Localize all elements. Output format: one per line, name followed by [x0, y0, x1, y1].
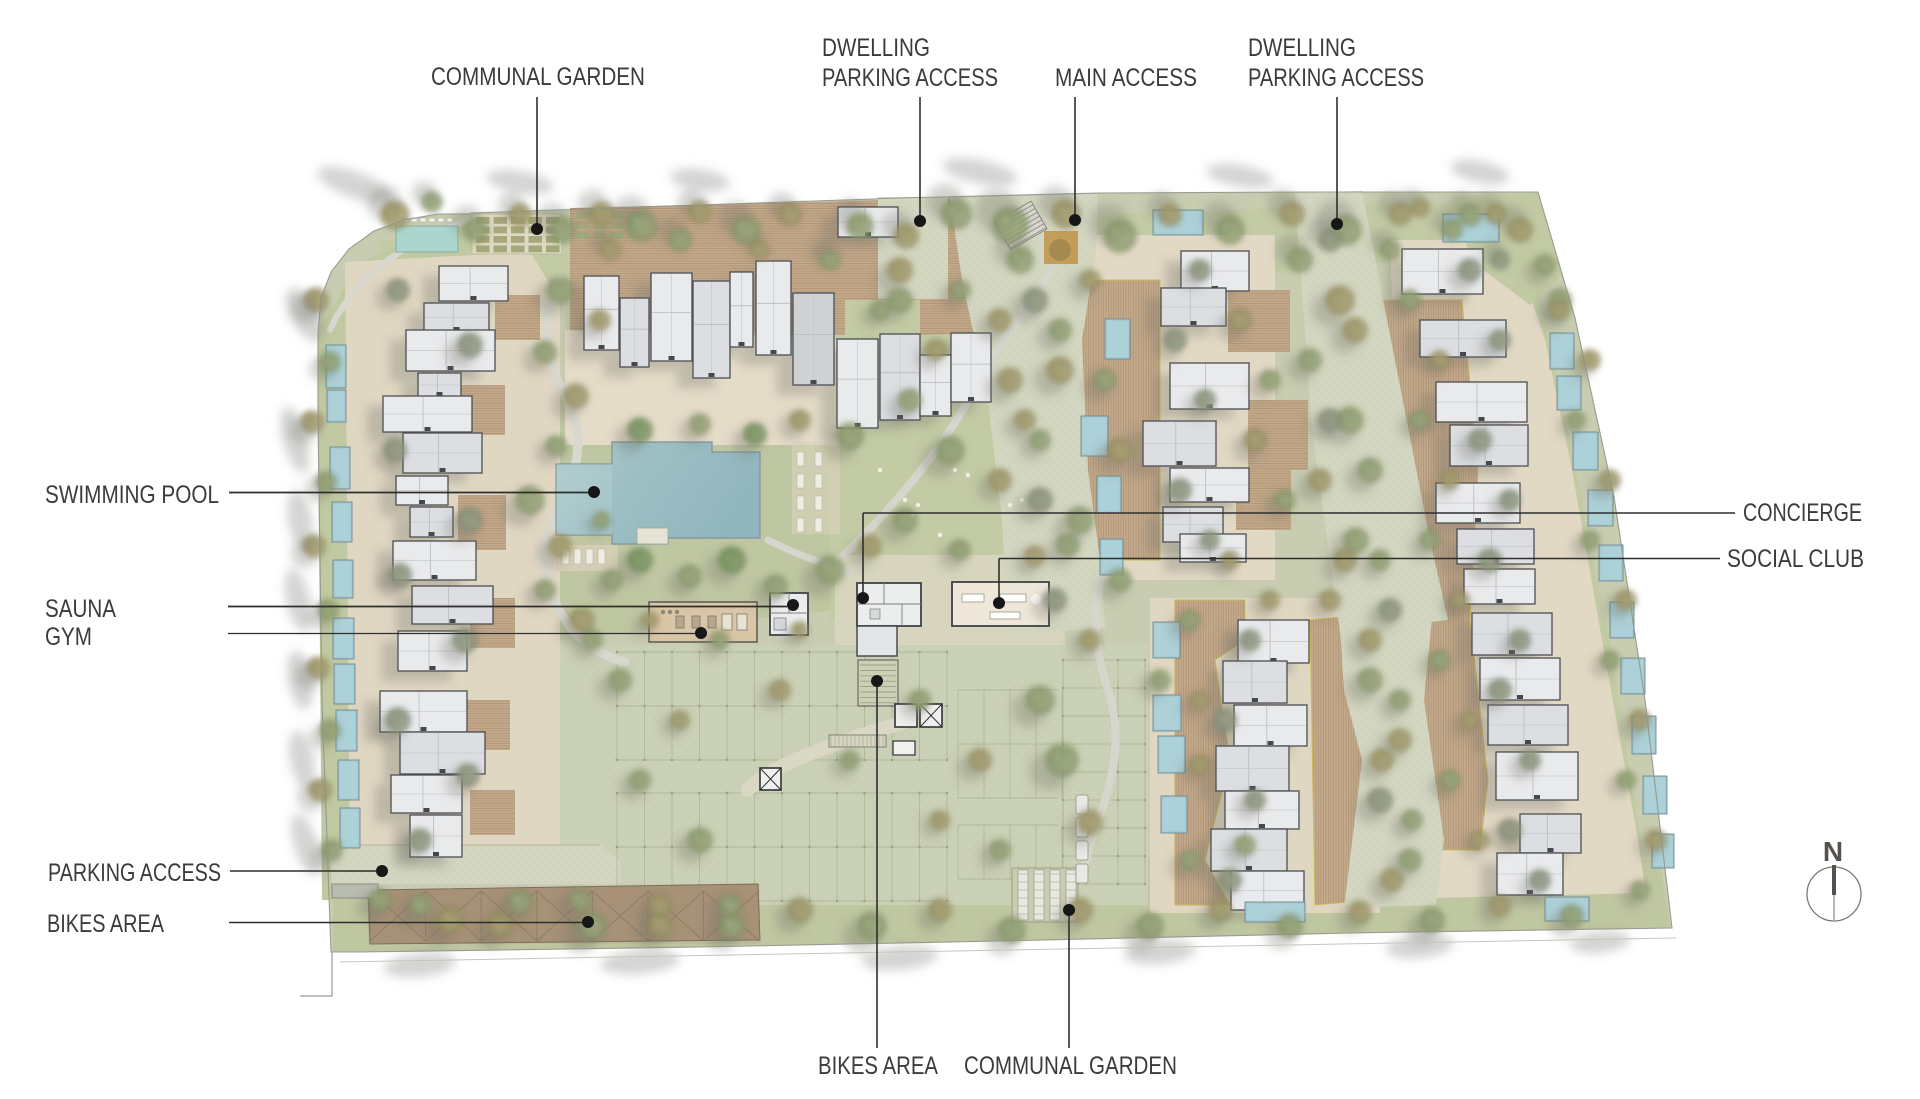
svg-text:SAUNA: SAUNA: [45, 595, 116, 623]
svg-text:DWELLING: DWELLING: [822, 34, 930, 62]
svg-text:SOCIAL CLUB: SOCIAL CLUB: [1727, 545, 1864, 573]
svg-text:MAIN ACCESS: MAIN ACCESS: [1055, 64, 1197, 92]
svg-text:SWIMMING POOL: SWIMMING POOL: [45, 481, 219, 509]
svg-text:BIKES AREA: BIKES AREA: [47, 910, 164, 938]
svg-text:COMMUNAL GARDEN: COMMUNAL GARDEN: [431, 63, 645, 91]
svg-text:PARKING ACCESS: PARKING ACCESS: [48, 859, 221, 887]
svg-text:PARKING ACCESS: PARKING ACCESS: [822, 64, 998, 92]
svg-text:COMMUNAL GARDEN: COMMUNAL GARDEN: [964, 1052, 1177, 1080]
svg-text:DWELLING: DWELLING: [1248, 34, 1356, 62]
svg-text:CONCIERGE: CONCIERGE: [1743, 499, 1862, 527]
svg-text:GYM: GYM: [45, 623, 92, 651]
svg-text:PARKING ACCESS: PARKING ACCESS: [1248, 64, 1424, 92]
svg-text:N: N: [1823, 836, 1843, 867]
svg-text:BIKES AREA: BIKES AREA: [818, 1052, 938, 1080]
